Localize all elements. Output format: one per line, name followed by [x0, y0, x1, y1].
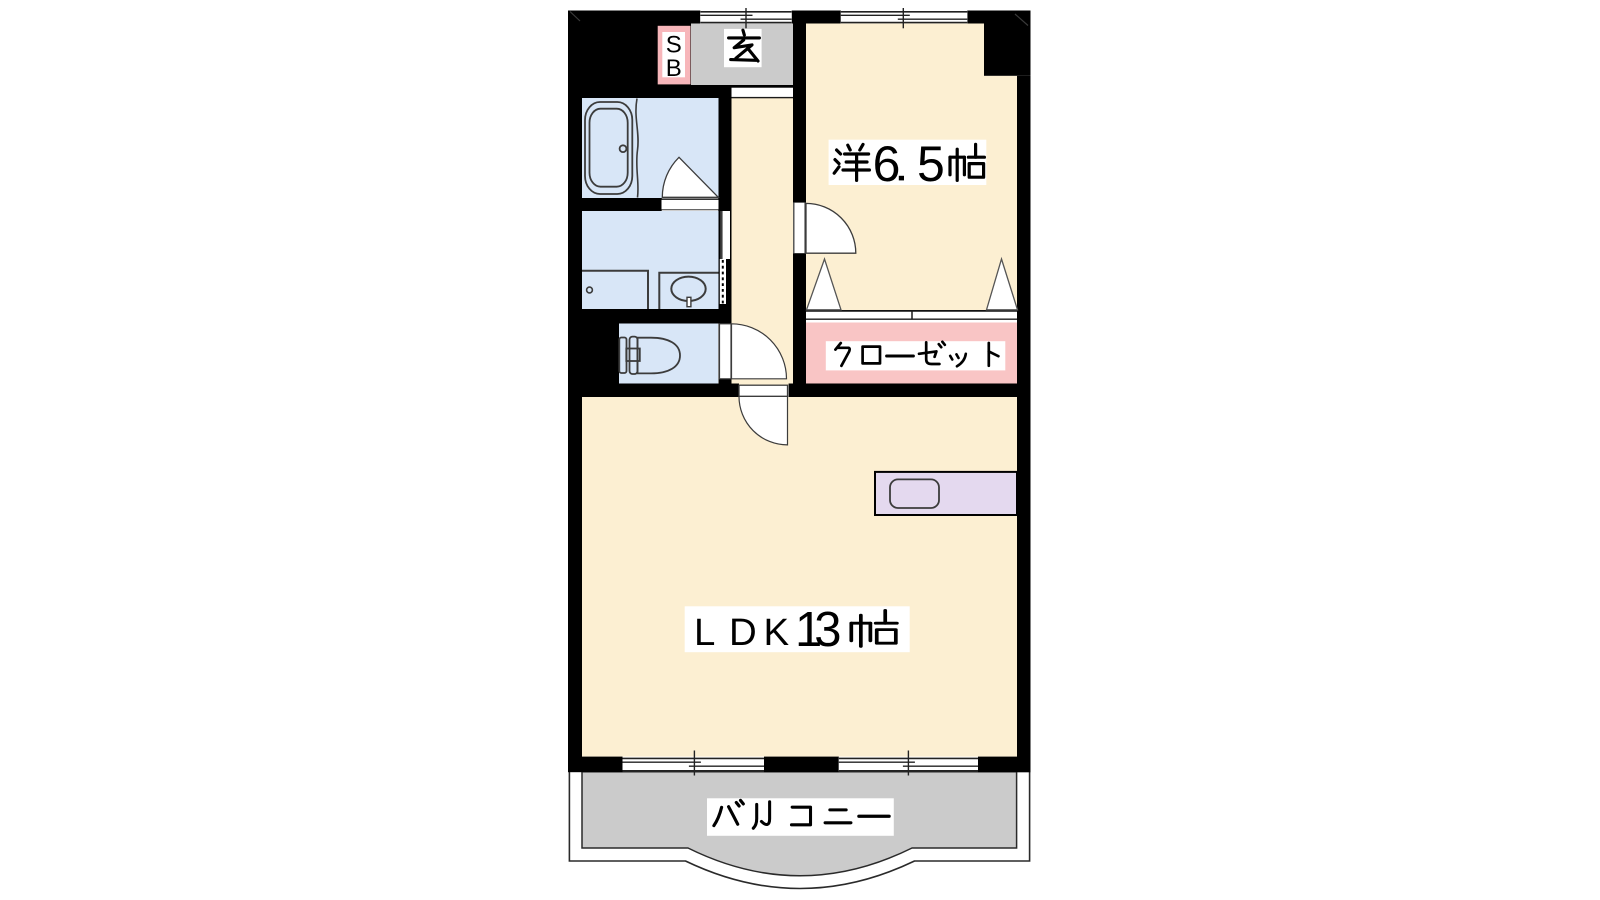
svg-text:D: D	[729, 611, 757, 654]
svg-text:K: K	[764, 611, 790, 654]
svg-text:6: 6	[873, 136, 901, 192]
svg-text:L: L	[694, 611, 715, 654]
svg-text:B: B	[666, 55, 682, 82]
svg-text:13: 13	[795, 603, 840, 657]
svg-text:5: 5	[917, 136, 945, 192]
